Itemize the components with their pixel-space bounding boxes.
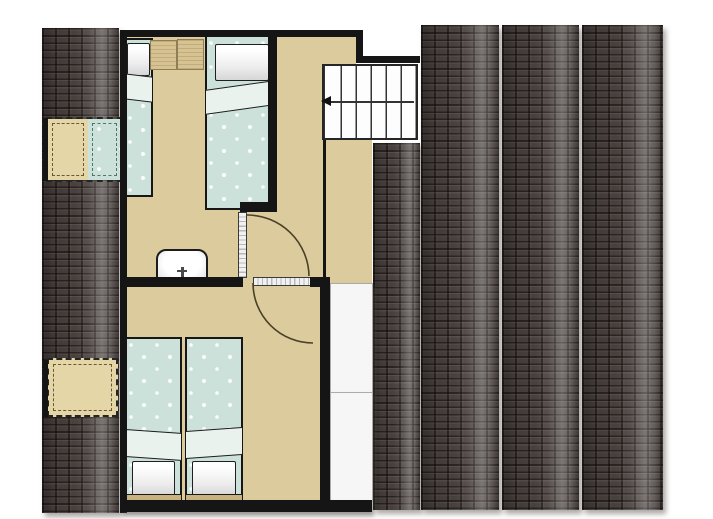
wall-segment	[268, 37, 277, 212]
wall-segment	[43, 118, 48, 181]
skylight-pane-inner-frame	[52, 123, 84, 176]
wall-segment	[240, 202, 277, 212]
stairs-direction-arrow	[321, 96, 331, 106]
roof-strip-left	[42, 28, 119, 513]
bed-pillow	[127, 43, 150, 76]
skylight-window-upper	[46, 117, 123, 182]
bed-pillow	[192, 461, 236, 497]
bed-single	[205, 35, 275, 210]
wall-segment	[320, 283, 330, 512]
roof-strip-right-2	[502, 25, 579, 510]
roof-strip-right-1	[421, 25, 499, 510]
wall-segment	[356, 30, 363, 63]
dormer-panel-upper	[330, 283, 373, 394]
wall-segment	[363, 56, 420, 63]
bed-single	[125, 337, 182, 502]
bed-single	[185, 337, 243, 502]
wall-segment	[120, 30, 127, 513]
bed-single	[124, 38, 153, 197]
skylight-pane-inner-frame	[92, 123, 117, 176]
skylight-pane-tan	[48, 119, 88, 180]
wall-segment	[120, 30, 363, 37]
door-leaf	[253, 277, 313, 286]
bed-pillow	[132, 461, 175, 497]
bed-fold	[186, 427, 242, 459]
bed-fold	[206, 80, 274, 115]
roof-strip-right-3	[582, 25, 663, 510]
roof-strip-middle	[373, 143, 420, 510]
dormer-panel-lower	[330, 392, 373, 502]
bed-pillow	[215, 44, 269, 81]
skylight-pane-inner-frame	[53, 364, 112, 411]
floor-plan-canvas	[0, 0, 713, 519]
wall-segment	[120, 277, 243, 287]
bedside-mat	[150, 40, 177, 70]
skylight-window-lower	[47, 358, 118, 417]
stair-railing	[323, 140, 326, 283]
skylight-pane-bed	[88, 119, 121, 180]
door-leaf	[238, 212, 247, 278]
bed-fold	[125, 73, 152, 102]
stairs-walk-line	[324, 101, 414, 103]
bedside-mat	[177, 39, 204, 70]
wall-segment	[310, 277, 330, 287]
wall-segment	[120, 500, 372, 512]
wall-segment	[43, 360, 48, 417]
staircase	[322, 64, 418, 140]
bed-fold	[126, 429, 181, 461]
